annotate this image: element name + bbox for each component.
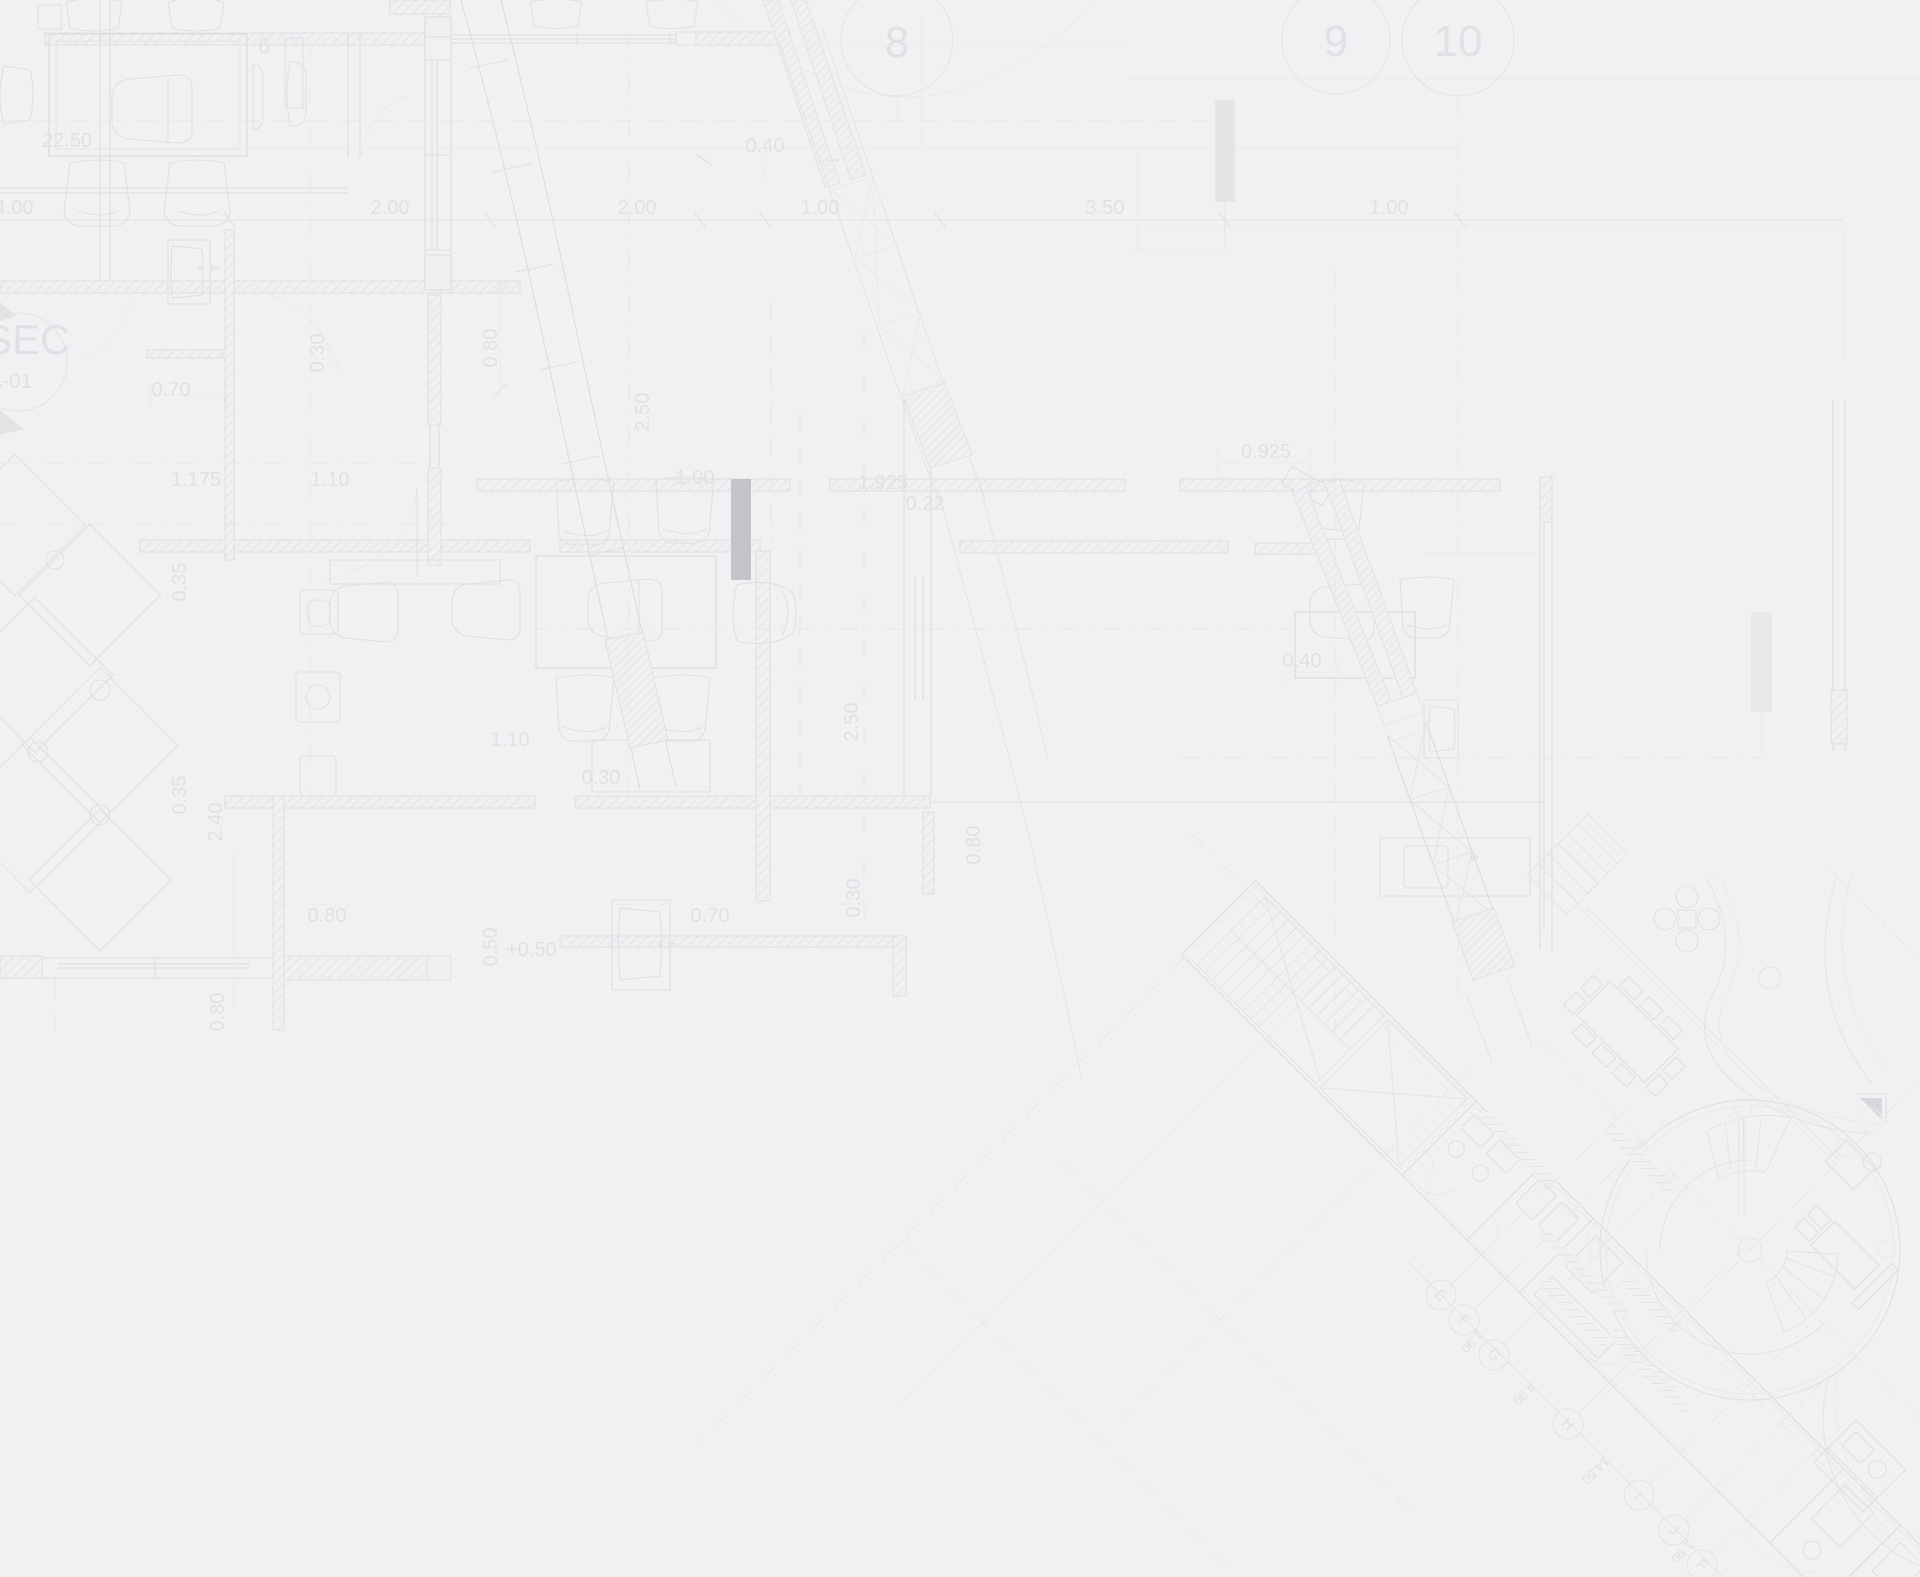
svg-text:1.10: 1.10 xyxy=(491,729,530,751)
svg-text:0.30: 0.30 xyxy=(843,879,865,918)
svg-text:1.00: 1.00 xyxy=(676,467,715,489)
svg-text:0.40: 0.40 xyxy=(746,135,785,157)
svg-text:1.00: 1.00 xyxy=(801,197,840,219)
svg-text:0.22: 0.22 xyxy=(906,493,945,515)
svg-text:0.30: 0.30 xyxy=(307,334,329,373)
svg-text:0.80: 0.80 xyxy=(480,329,502,368)
svg-text:2.50: 2.50 xyxy=(841,703,863,742)
svg-text:6: 6 xyxy=(258,35,270,58)
svg-text:0.35: 0.35 xyxy=(169,563,191,602)
svg-text:+0.50: +0.50 xyxy=(506,939,557,961)
svg-text:2.50: 2.50 xyxy=(632,393,654,432)
svg-text:A-01: A-01 xyxy=(0,370,32,393)
svg-text:2.00: 2.00 xyxy=(618,197,657,219)
svg-text:1.00: 1.00 xyxy=(1370,197,1409,219)
svg-text:0.80: 0.80 xyxy=(963,826,985,865)
svg-text:3.50: 3.50 xyxy=(1086,197,1125,219)
svg-text:0.80: 0.80 xyxy=(308,905,347,927)
svg-text:1.175: 1.175 xyxy=(171,469,221,491)
svg-text:9: 9 xyxy=(1324,17,1348,66)
svg-text:0.80: 0.80 xyxy=(207,993,229,1032)
svg-text:0.925: 0.925 xyxy=(1241,441,1291,463)
svg-text:0.35: 0.35 xyxy=(169,776,191,815)
svg-text:1.10: 1.10 xyxy=(311,469,350,491)
svg-text:0.50: 0.50 xyxy=(480,928,502,967)
svg-text:4.00: 4.00 xyxy=(0,197,33,219)
svg-text:1.925: 1.925 xyxy=(858,472,908,494)
svg-text:SEC: SEC xyxy=(0,316,70,363)
svg-text:0.30: 0.30 xyxy=(582,767,621,789)
svg-text:2.00: 2.00 xyxy=(371,197,410,219)
svg-text:2.40: 2.40 xyxy=(205,803,227,842)
svg-text:0.70: 0.70 xyxy=(691,905,730,927)
svg-text:22.50: 22.50 xyxy=(42,130,92,152)
svg-text:0.70: 0.70 xyxy=(152,379,191,401)
svg-text:10: 10 xyxy=(1434,17,1483,66)
svg-text:0.40: 0.40 xyxy=(1283,650,1322,672)
svg-text:8: 8 xyxy=(885,18,909,67)
